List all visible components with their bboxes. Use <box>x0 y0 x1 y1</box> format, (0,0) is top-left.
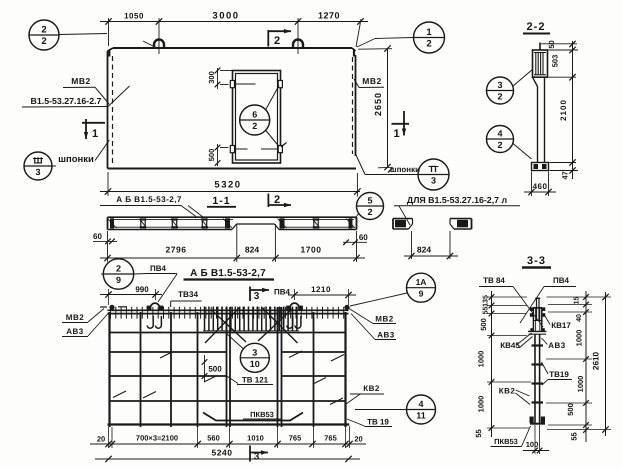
svg-text:2650: 2650 <box>373 92 383 116</box>
svg-text:15: 15 <box>574 297 581 305</box>
svg-text:2: 2 <box>497 92 502 102</box>
svg-text:10: 10 <box>250 359 260 369</box>
svg-text:1270: 1270 <box>318 11 340 21</box>
svg-text:1700: 1700 <box>301 245 322 255</box>
svg-text:3: 3 <box>254 291 260 302</box>
svg-text:ТВ 121: ТВ 121 <box>242 376 269 385</box>
svg-text:4: 4 <box>418 399 423 409</box>
svg-text:2: 2 <box>274 194 280 206</box>
svg-text:20: 20 <box>97 435 105 444</box>
svg-text:824: 824 <box>417 245 431 255</box>
svg-text:55: 55 <box>474 429 483 437</box>
svg-text:5320: 5320 <box>214 180 241 191</box>
svg-text:60: 60 <box>359 233 368 242</box>
svg-text:шпонки: шпонки <box>390 165 420 174</box>
svg-text:2: 2 <box>252 121 257 131</box>
svg-text:50: 50 <box>547 40 556 48</box>
svg-text:КВ2: КВ2 <box>499 387 516 396</box>
svg-text:3: 3 <box>431 176 436 186</box>
svg-text:1050: 1050 <box>124 12 144 21</box>
svg-text:3: 3 <box>497 80 502 90</box>
svg-text:2: 2 <box>41 25 46 36</box>
svg-text:КВ45: КВ45 <box>500 341 520 350</box>
svg-text:9: 9 <box>419 289 424 299</box>
svg-text:А Б В1.5-53-2,7: А Б В1.5-53-2,7 <box>116 195 182 204</box>
svg-text:765: 765 <box>324 434 337 443</box>
svg-text:АВ3: АВ3 <box>377 331 395 340</box>
svg-text:А Б В1.5-53-2,7: А Б В1.5-53-2,7 <box>190 268 266 279</box>
svg-text:3-3: 3-3 <box>527 255 546 267</box>
svg-text:1000: 1000 <box>576 376 585 393</box>
svg-text:6: 6 <box>252 110 257 120</box>
svg-text:20: 20 <box>354 435 362 444</box>
svg-text:47: 47 <box>561 171 570 179</box>
svg-text:П: П <box>430 164 436 174</box>
svg-text:2796: 2796 <box>166 245 187 255</box>
svg-text:3: 3 <box>254 452 260 463</box>
svg-text:ПКВ53: ПКВ53 <box>494 437 518 446</box>
svg-text:100: 100 <box>526 440 539 449</box>
svg-text:ТВ 19: ТВ 19 <box>367 418 389 427</box>
svg-text:ПВ4: ПВ4 <box>150 264 167 273</box>
svg-text:МВ2: МВ2 <box>66 313 84 322</box>
svg-text:503: 503 <box>551 55 560 68</box>
svg-text:1000: 1000 <box>575 330 584 347</box>
svg-text:ТВ34: ТВ34 <box>178 290 198 299</box>
svg-text:500: 500 <box>207 149 216 162</box>
svg-text:3: 3 <box>35 167 40 177</box>
svg-text:2: 2 <box>497 140 502 150</box>
svg-text:2-2: 2-2 <box>527 21 546 33</box>
svg-text:ТВ19: ТВ19 <box>549 370 569 379</box>
svg-text:1: 1 <box>92 128 98 140</box>
svg-text:560: 560 <box>207 434 220 443</box>
svg-text:КВ2: КВ2 <box>363 384 380 393</box>
svg-text:В1.5-53.27.16-2.7: В1.5-53.27.16-2.7 <box>31 96 102 106</box>
svg-text:1: 1 <box>393 128 399 140</box>
svg-text:765: 765 <box>289 434 302 443</box>
svg-text:1-1: 1-1 <box>212 195 230 207</box>
svg-text:990: 990 <box>135 285 149 294</box>
svg-text:2: 2 <box>367 207 372 217</box>
svg-text:4: 4 <box>497 129 502 139</box>
svg-text:40: 40 <box>576 314 583 322</box>
svg-text:шпонки: шпонки <box>58 154 94 165</box>
svg-text:500: 500 <box>208 365 222 374</box>
svg-text:3000: 3000 <box>212 11 239 22</box>
svg-text:9: 9 <box>116 275 121 285</box>
svg-text:МВ2: МВ2 <box>362 76 381 86</box>
svg-text:500: 500 <box>566 403 575 416</box>
svg-text:55: 55 <box>570 432 579 440</box>
svg-text:11: 11 <box>416 411 426 421</box>
svg-text:МВ2: МВ2 <box>71 76 90 86</box>
svg-text:2: 2 <box>116 264 121 274</box>
svg-text:1000: 1000 <box>477 396 486 413</box>
svg-text:2: 2 <box>41 36 46 47</box>
svg-text:1000: 1000 <box>477 351 486 368</box>
svg-text:2100: 2100 <box>559 99 568 121</box>
svg-text:2: 2 <box>426 39 431 50</box>
svg-text:ПВ4: ПВ4 <box>553 276 570 285</box>
svg-text:АВ3: АВ3 <box>548 341 566 350</box>
svg-text:Ш: Ш <box>33 156 42 166</box>
svg-text:1: 1 <box>426 27 432 38</box>
svg-text:МВ2: МВ2 <box>375 315 393 324</box>
svg-text:ПКВ53: ПКВ53 <box>250 410 274 419</box>
svg-text:1А: 1А <box>416 277 427 287</box>
svg-text:135: 135 <box>483 295 490 307</box>
svg-text:300: 300 <box>207 71 216 84</box>
svg-text:500: 500 <box>479 318 488 331</box>
svg-text:2610: 2610 <box>592 351 601 370</box>
svg-text:60: 60 <box>93 232 102 241</box>
svg-text:460: 460 <box>533 182 548 191</box>
svg-text:5240: 5240 <box>212 448 233 458</box>
svg-text:55: 55 <box>483 307 490 315</box>
svg-text:ДЛЯ В1.5-53.27.16-2,7 л: ДЛЯ В1.5-53.27.16-2,7 л <box>407 195 507 205</box>
svg-text:КВ17: КВ17 <box>551 321 571 330</box>
svg-text:700×3=2100: 700×3=2100 <box>136 434 178 443</box>
svg-text:ТВ 84: ТВ 84 <box>483 276 505 285</box>
svg-text:824: 824 <box>245 245 259 255</box>
svg-text:АВ3: АВ3 <box>66 327 84 336</box>
svg-text:3: 3 <box>252 347 257 357</box>
svg-text:1010: 1010 <box>247 434 264 443</box>
svg-text:2: 2 <box>274 35 280 47</box>
svg-text:5: 5 <box>367 196 372 206</box>
svg-text:1210: 1210 <box>311 285 331 294</box>
